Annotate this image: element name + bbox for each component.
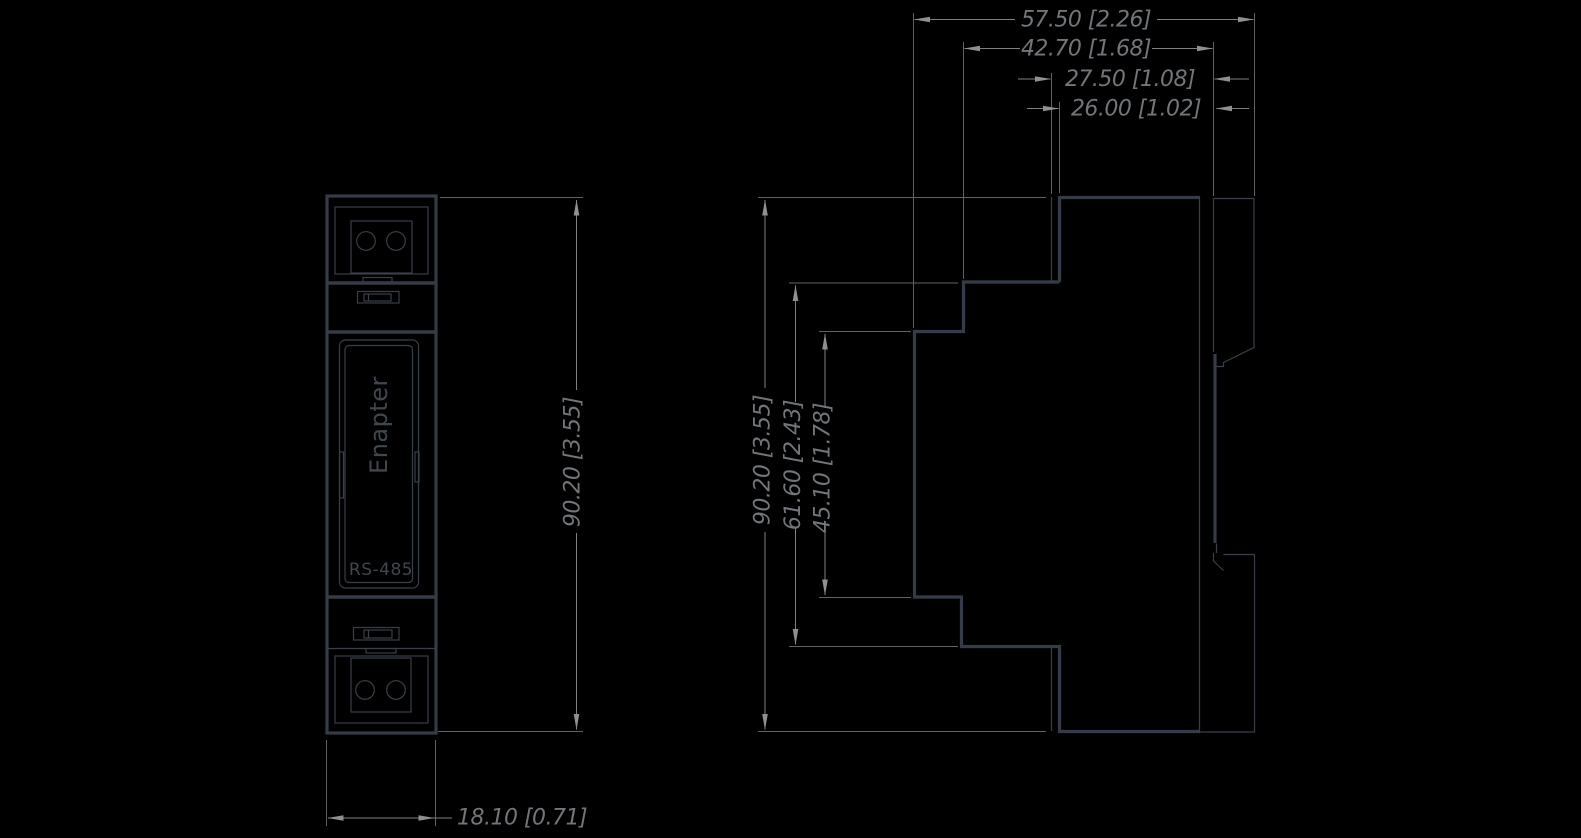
height-inner-steps-dim: 45.10 [1.78] [811,403,836,533]
front-view-dimensions: 90.20 [3.55] 18.10 [0.71] [327,198,588,831]
side-profile-outline [915,196,1201,732]
height-outer-steps-dim: 61.60 [2.43] [781,400,806,530]
depth-upper-dim: 27.50 [1.08] [1065,67,1195,92]
bottom-clip-tab [366,649,396,654]
depth-face-dim: 26.00 [1.02] [1071,97,1201,122]
depth-total-dim: 57.50 [2.26] [1021,8,1151,33]
top-connector-housing [335,207,428,274]
bottom-connector-socket [351,658,411,712]
bottom-connector-pin-right [387,681,406,700]
front-view: Enapter RS-485 [327,196,436,733]
din-clip-bottom [1200,555,1255,733]
front-width-dim: 18.10 [0.71] [457,806,587,831]
side-view-top-dimensions: 57.50 [2.26] 42.70 [1.68] 27.50 [1.08] 2… [914,8,1255,329]
port-label: RS-485 [349,560,413,580]
din-clip-latch [1214,544,1224,571]
bottom-connector-pin-left [356,681,375,700]
dimension-drawing-svg: Enapter RS-485 90.20 [3.55] 18.10 [0.71] [0,0,1581,838]
height-total-dim: 90.20 [3.55] [751,395,776,525]
bottom-connector-housing [335,656,428,723]
din-flange-top [1214,199,1255,367]
brand-label: Enapter [365,376,393,474]
top-connector-pin-left [357,232,376,251]
drawing-canvas: Enapter RS-485 90.20 [3.55] 18.10 [0.71] [0,0,1581,838]
side-view [915,196,1255,732]
side-view-left-dimensions: 90.20 [3.55] 61.60 [2.43] 45.10 [1.78] [751,198,1047,732]
top-connector-pin-right [387,232,406,251]
depth-body-dim: 42.70 [1.68] [1021,37,1151,62]
front-height-dim: 90.20 [3.55] [561,397,586,527]
